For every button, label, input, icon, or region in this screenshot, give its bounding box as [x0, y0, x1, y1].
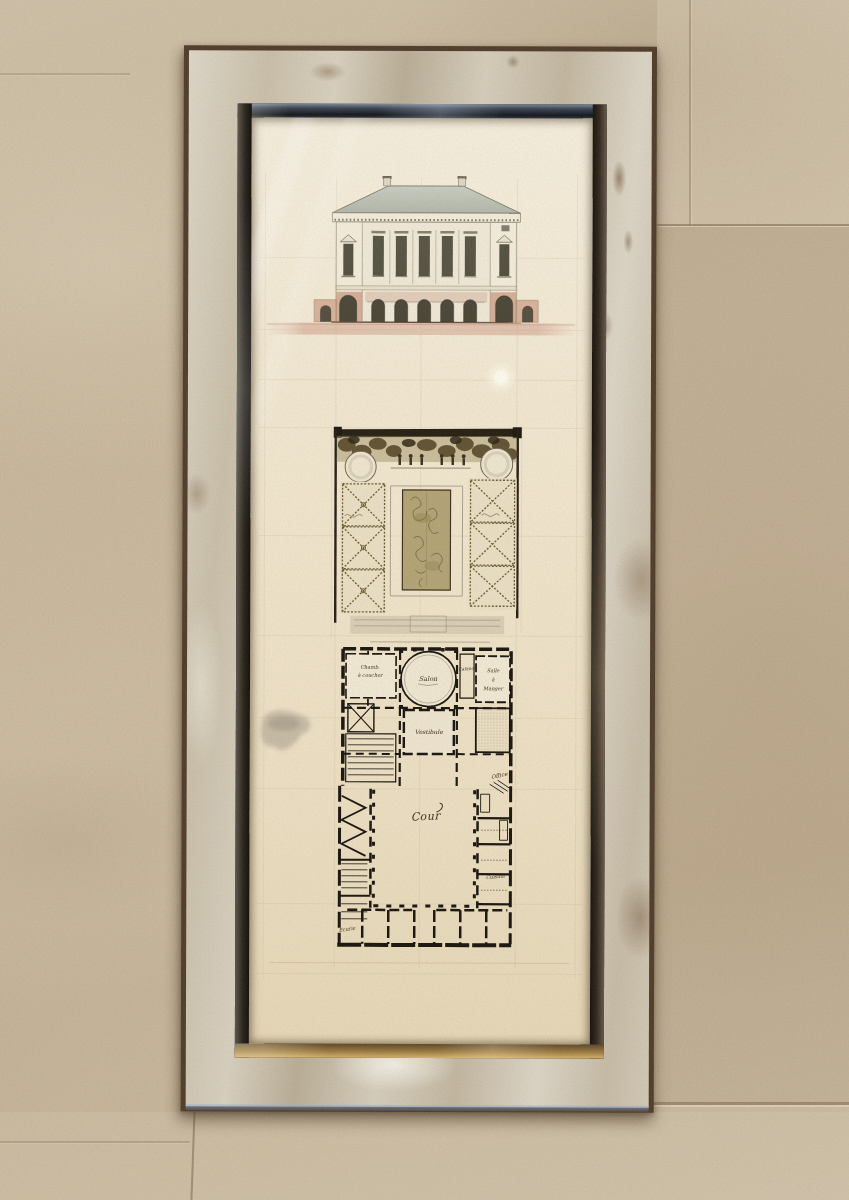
- label-salle-line1: Salle: [487, 667, 501, 673]
- stable-stalls: [341, 796, 365, 856]
- picture-frame: Salon Vestibule Chamb. à coucher Cabinet…: [181, 45, 657, 1112]
- trellis-right: [468, 478, 516, 610]
- stone-block-bottom: [0, 1112, 849, 1200]
- ground-wash: [267, 323, 575, 336]
- label-cuisine: Cuisine: [485, 872, 505, 880]
- label-chambre-line1: Chamb.: [360, 664, 380, 670]
- staircase-service: [341, 864, 367, 888]
- stone-joint-top-right-horizontal: [657, 224, 849, 226]
- stone-block-top-right: [657, 0, 849, 225]
- label-cour: Cour: [410, 809, 441, 823]
- label-salle-line2: à: [492, 676, 495, 682]
- roof: [332, 186, 520, 214]
- wall-crack: [190, 1110, 195, 1200]
- wash-stain: [261, 711, 310, 751]
- drawing-paper: Salon Vestibule Chamb. à coucher Cabinet…: [249, 117, 593, 1044]
- stone-joint-top-left: [0, 73, 130, 75]
- label-salon: Salon: [419, 675, 438, 683]
- label-salle-line3: Manger: [483, 685, 505, 692]
- stone-joint-bottom-left: [0, 1141, 190, 1143]
- ground-arcade: [314, 292, 538, 323]
- label-chambre-line2: à coucher: [358, 672, 385, 678]
- room-cabinet: [460, 654, 474, 698]
- garden-terrace: [350, 616, 504, 642]
- photo-scene: Salon Vestibule Chamb. à coucher Cabinet…: [0, 0, 849, 1200]
- trellis-left: [340, 482, 386, 614]
- molding-top: [238, 103, 607, 118]
- label-office: Office: [491, 771, 509, 780]
- garden-plan: [331, 427, 522, 643]
- elevation-drawing: [267, 176, 575, 336]
- bottom-outer-wall: [337, 945, 511, 946]
- parterre: [390, 486, 462, 596]
- room-shaded: [476, 708, 510, 752]
- frame-inner-molding: Salon Vestibule Chamb. à coucher Cabinet…: [235, 103, 607, 1058]
- artwork-drawing: Salon Vestibule Chamb. à coucher Cabinet…: [249, 117, 593, 1044]
- molding-bottom: [235, 1043, 604, 1058]
- label-vestibule: Vestibule: [415, 728, 443, 735]
- ground-line: [331, 322, 521, 323]
- label-ecurie: Ecurie: [338, 925, 356, 933]
- stone-joint-top-right-vertical: [689, 0, 691, 225]
- stone-block-right: [657, 226, 849, 1103]
- stone-joint-bottom-right: [650, 1102, 849, 1105]
